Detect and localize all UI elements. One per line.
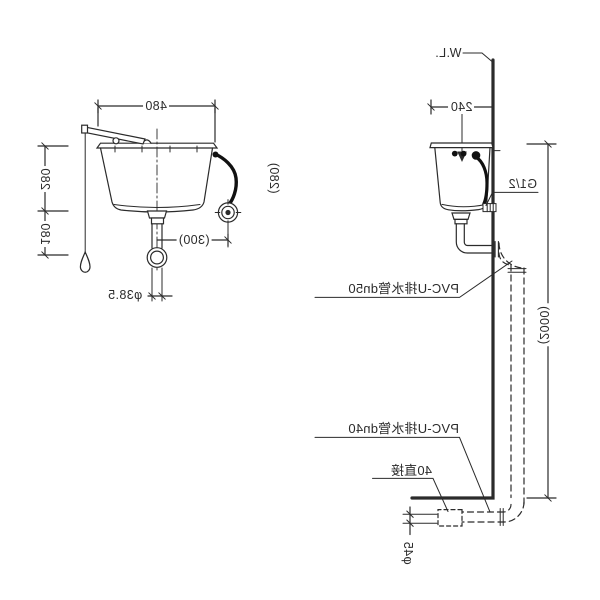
wall-flange-centre (225, 210, 230, 215)
flush-pipe-elbow-outer (456, 224, 493, 253)
wl-leader (463, 53, 492, 62)
outlet-nut-side (452, 213, 470, 219)
chain-pull-handle (80, 252, 90, 272)
linework (0, 0, 600, 600)
water-line-label: W.L. (435, 46, 462, 61)
g12-label: G1/2 (508, 177, 537, 192)
mechanism-dot-2 (461, 151, 467, 157)
lever-tip (82, 125, 88, 133)
flush-pipe-elbow-inner (464, 224, 493, 246)
coupling-40 (438, 510, 462, 526)
coupling-label: 40直接 (391, 463, 432, 478)
supply-hose-side (476, 157, 487, 204)
tank-lid-side (430, 143, 493, 148)
dn50-elbow-outer (499, 243, 524, 268)
dn50-pipe-label: PVC-U排水管dn50 (348, 281, 459, 296)
dim-text-2000: (2000) (537, 304, 551, 347)
dim-text-300: (300) (176, 233, 211, 247)
cistern-front-view (38, 100, 241, 301)
dim-text-280: 280 (39, 166, 53, 192)
drawing-sheet: 480 280 180 (280) (300) φ38.5 W.L. 240 G… (0, 0, 600, 600)
outlet-nut-side-2 (455, 219, 467, 223)
dim-text-45: φ45 (401, 539, 415, 566)
wall-sleeve (495, 242, 498, 258)
mechanism-dot-1 (452, 151, 458, 157)
dn40-branch-pipe (462, 512, 504, 522)
dn50-bottom-elbow-outer (504, 502, 524, 522)
dim-text-180: 180 (39, 221, 53, 247)
dim-text-240: 240 (448, 100, 474, 114)
dim-text-outlet-dia: φ38.5 (106, 288, 144, 302)
branch-socket (500, 509, 503, 526)
dn40-pipe-label: PVC-U排水管dn40 (348, 421, 459, 436)
dim-text-280-paren: (280) (267, 160, 281, 195)
lever-pivot (113, 138, 119, 144)
hose-fitting (213, 152, 219, 158)
dim-text-480: 480 (143, 99, 169, 113)
outlet-nut-upper (148, 211, 167, 218)
tank-bottom-inner-side (442, 204, 485, 206)
dn50-bottom-elbow-inner (504, 505, 512, 513)
outlet-nut-lower (152, 218, 164, 224)
g12-fitting (483, 204, 496, 212)
tank-body (101, 148, 213, 212)
supply-hose (215, 154, 236, 205)
